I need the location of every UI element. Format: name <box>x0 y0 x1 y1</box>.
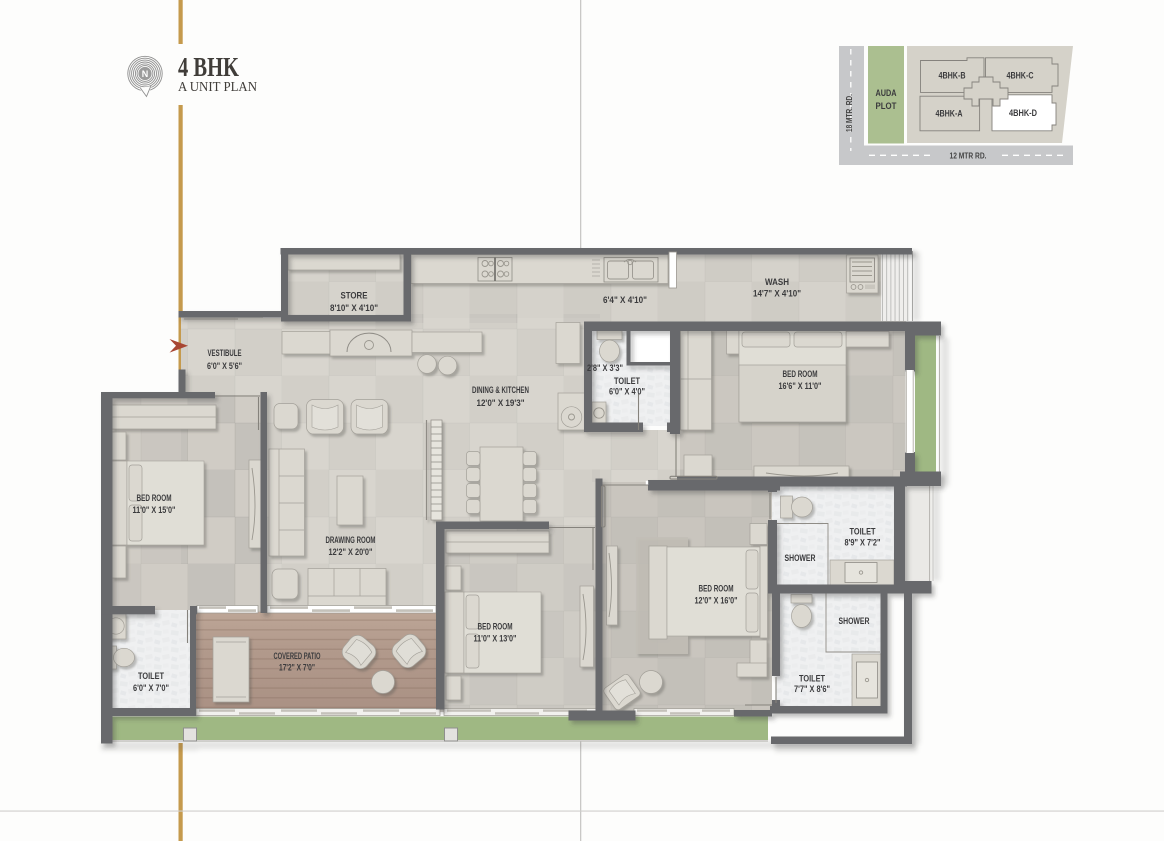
svg-text:STORE: STORE <box>341 291 368 302</box>
svg-text:6'0" X 4'0": 6'0" X 4'0" <box>609 387 645 397</box>
svg-text:4BHK-B: 4BHK-B <box>939 71 966 82</box>
svg-text:A UNIT PLAN: A UNIT PLAN <box>178 79 257 94</box>
svg-text:12'0" X 16'0": 12'0" X 16'0" <box>695 596 738 606</box>
svg-text:TOILET: TOILET <box>614 376 640 387</box>
svg-text:DRAWING ROOM: DRAWING ROOM <box>326 535 376 546</box>
svg-text:DINING & KITCHEN: DINING & KITCHEN <box>472 385 529 396</box>
svg-text:6'4" X 4'10": 6'4" X 4'10" <box>603 295 647 305</box>
svg-text:TOILET: TOILET <box>799 674 825 685</box>
svg-text:SHOWER: SHOWER <box>785 553 816 564</box>
svg-text:11'0" X 15'0": 11'0" X 15'0" <box>133 505 176 515</box>
svg-text:8'9" X 7'2": 8'9" X 7'2" <box>845 538 881 548</box>
svg-text:4BHK-D: 4BHK-D <box>1009 108 1037 119</box>
svg-text:BED ROOM: BED ROOM <box>783 369 818 380</box>
svg-text:BED ROOM: BED ROOM <box>478 622 513 633</box>
svg-text:SHOWER: SHOWER <box>839 616 870 627</box>
svg-text:4BHK-A: 4BHK-A <box>936 109 963 120</box>
svg-text:6'0" X 5'6": 6'0" X 5'6" <box>207 361 242 371</box>
svg-text:6'0" X 7'0": 6'0" X 7'0" <box>133 683 169 693</box>
svg-text:14'7" X 4'10": 14'7" X 4'10" <box>753 289 801 299</box>
svg-text:16'6" X 11'0": 16'6" X 11'0" <box>779 381 822 391</box>
svg-text:WASH: WASH <box>765 277 789 288</box>
svg-text:N: N <box>142 69 149 79</box>
svg-text:7'7" X 8'6": 7'7" X 8'6" <box>794 684 830 694</box>
svg-text:PLOT: PLOT <box>876 101 897 112</box>
svg-text:4 BHK: 4 BHK <box>178 52 239 82</box>
svg-text:TOILET: TOILET <box>850 527 876 538</box>
svg-text:17'2" X 7'0": 17'2" X 7'0" <box>279 663 315 673</box>
svg-text:8'10" X 4'10": 8'10" X 4'10" <box>330 303 378 313</box>
svg-text:2'8" X 3'3": 2'8" X 3'3" <box>587 363 623 373</box>
svg-text:BED ROOM: BED ROOM <box>137 493 172 504</box>
svg-text:COVERED PATIO: COVERED PATIO <box>274 651 321 662</box>
svg-text:12'0" X 19'3": 12'0" X 19'3" <box>477 398 525 408</box>
svg-text:4BHK-C: 4BHK-C <box>1007 71 1034 82</box>
svg-text:TOILET: TOILET <box>138 671 164 682</box>
svg-text:VESTIBULE: VESTIBULE <box>208 348 242 359</box>
svg-text:AUDA: AUDA <box>876 88 897 99</box>
svg-text:12'2" X 20'0": 12'2" X 20'0" <box>329 547 373 557</box>
svg-text:12 MTR RD.: 12 MTR RD. <box>950 152 987 161</box>
svg-text:BED ROOM: BED ROOM <box>699 584 734 595</box>
svg-text:18 MTR. RD.: 18 MTR. RD. <box>845 94 854 132</box>
svg-text:11'0" X 13'0": 11'0" X 13'0" <box>474 634 517 644</box>
